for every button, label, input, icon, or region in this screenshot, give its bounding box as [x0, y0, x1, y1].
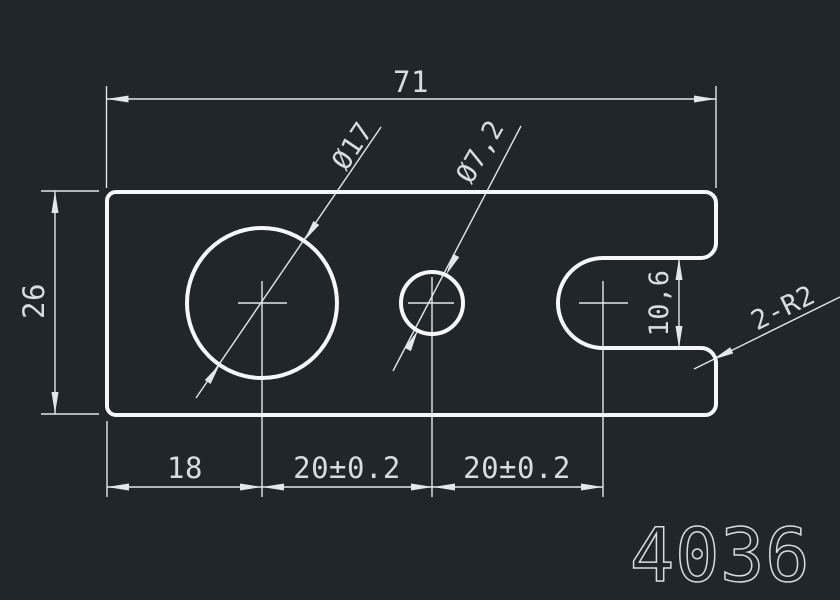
part-number-label: 4036	[630, 513, 810, 599]
cad-viewport[interactable]: 71 26 18 20±0.2 20±0.2 10,6 Ø17 Ø7,2 2-R…	[0, 0, 840, 600]
dim-text-small-to-slot: 20±0.2	[463, 451, 571, 485]
dim-text-large-to-small: 20±0.2	[293, 451, 401, 485]
dim-text-edge-to-large-hole: 18	[167, 451, 203, 485]
dim-text-overall-width: 71	[393, 65, 429, 99]
dim-text-overall-height: 26	[17, 283, 51, 319]
cad-drawing-canvas[interactable]: 71 26 18 20±0.2 20±0.2 10,6 Ø17 Ø7,2 2-R…	[0, 0, 840, 600]
dim-text-slot-width: 10,6	[644, 269, 675, 336]
